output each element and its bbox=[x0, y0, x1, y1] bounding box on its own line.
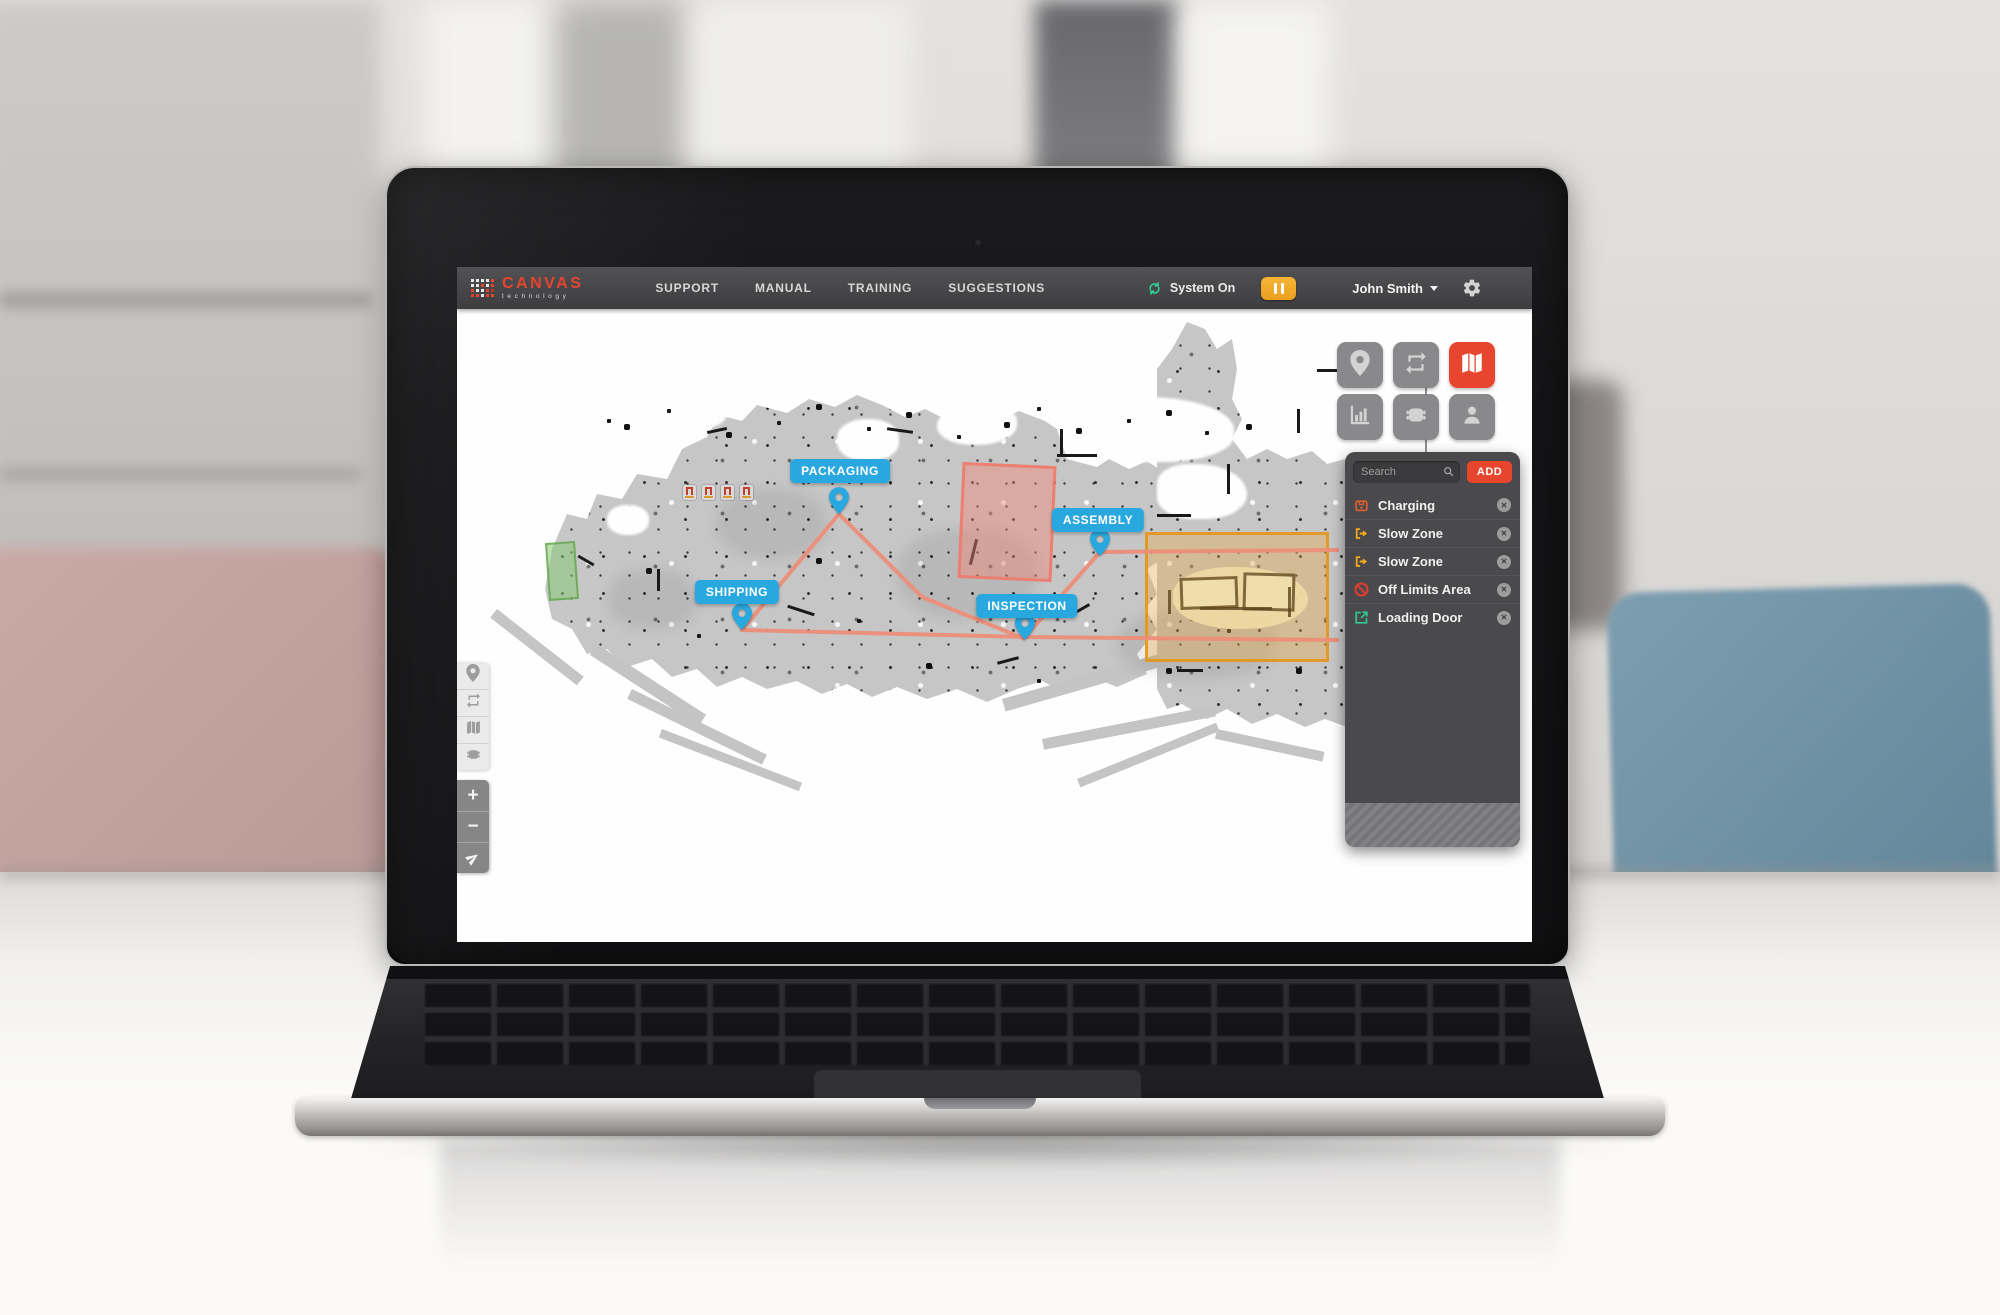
keyboard bbox=[425, 983, 1529, 1065]
pause-icon bbox=[1281, 283, 1284, 294]
search-icon bbox=[1442, 465, 1455, 478]
nav-menu: SUPPORT MANUAL TRAINING SUGGESTIONS bbox=[655, 281, 1045, 295]
list-item-label: Off Limits Area bbox=[1378, 582, 1489, 597]
top-navbar: CANVAS technology SUPPORT MANUAL TRAININ… bbox=[457, 267, 1532, 309]
slow-zone-area[interactable] bbox=[1145, 532, 1329, 662]
brand-name: CANVAS bbox=[502, 277, 583, 291]
floorplan-wall bbox=[1157, 514, 1191, 517]
panel-footer-grip[interactable] bbox=[1345, 803, 1520, 847]
off-limits-icon bbox=[1353, 581, 1370, 598]
add-button[interactable]: ADD bbox=[1467, 461, 1512, 483]
mini-routes-button[interactable] bbox=[457, 689, 489, 716]
list-item-label: Charging bbox=[1378, 498, 1489, 513]
floorplan-wall bbox=[657, 569, 660, 591]
zoom-out-button[interactable]: − bbox=[457, 811, 489, 842]
floorplan-wall bbox=[1060, 429, 1063, 457]
laptop-hinge bbox=[350, 966, 1605, 979]
map-pin-packaging[interactable] bbox=[829, 487, 849, 514]
toolbar-stats-button[interactable] bbox=[1337, 394, 1383, 440]
charging-glyph bbox=[743, 487, 750, 495]
charging-glyph bbox=[724, 487, 731, 495]
mini-locations-button[interactable] bbox=[457, 662, 489, 689]
charging-glyph-base bbox=[742, 496, 751, 498]
shelf-line bbox=[0, 292, 370, 308]
charging-station-marker[interactable] bbox=[721, 485, 734, 500]
charging-station-marker[interactable] bbox=[683, 485, 696, 500]
marker-label-assembly[interactable]: ASSEMBLY bbox=[1052, 508, 1144, 532]
floorplan-tendril bbox=[1042, 706, 1216, 750]
caret-down-icon bbox=[1430, 286, 1438, 291]
laptop-keyboard-deck bbox=[350, 966, 1605, 1102]
lid-opening-notch bbox=[924, 1098, 1036, 1109]
webcam-dot bbox=[973, 238, 982, 247]
floorplan-wall bbox=[1297, 409, 1300, 433]
floorplan-wall bbox=[1057, 454, 1097, 457]
laptop-desk-reflection bbox=[440, 1140, 1560, 1270]
robot-icon bbox=[1403, 402, 1429, 433]
floorplan-shade bbox=[717, 489, 827, 559]
remove-item-button[interactable]: ✕ bbox=[1497, 555, 1511, 569]
laptop-base-edge bbox=[295, 1098, 1665, 1136]
off-limits-zone[interactable] bbox=[958, 462, 1057, 582]
charging-station-marker[interactable] bbox=[740, 485, 753, 500]
navbar-right-cluster: System On John Smith bbox=[1146, 277, 1482, 300]
shelf-line bbox=[0, 468, 360, 480]
map-pin-shipping[interactable] bbox=[732, 603, 752, 630]
list-item-off-limits[interactable]: Off Limits Area ✕ bbox=[1345, 575, 1520, 603]
floorplan-white-room bbox=[667, 395, 727, 429]
toolbar-robots-button[interactable] bbox=[1393, 394, 1439, 440]
routes-loop-icon bbox=[465, 692, 482, 714]
list-item-slow-zone[interactable]: Slow Zone ✕ bbox=[1345, 519, 1520, 547]
loading-door-icon bbox=[1353, 609, 1370, 626]
panel-search-row: ADD bbox=[1345, 452, 1520, 487]
floorplan-white-room bbox=[937, 405, 1017, 445]
user-icon bbox=[1459, 402, 1485, 433]
charging-station-icon bbox=[1353, 497, 1370, 514]
navigate-arrow-icon bbox=[462, 847, 484, 869]
floorplan-tendril bbox=[627, 689, 767, 765]
list-item-charging[interactable]: Charging ✕ bbox=[1345, 491, 1520, 519]
charging-glyph bbox=[705, 487, 712, 495]
floorplan-shade bbox=[607, 569, 697, 629]
list-item-label: Loading Door bbox=[1378, 610, 1489, 625]
floorplan-speckles bbox=[607, 419, 611, 423]
canvas-app-window: CANVAS technology SUPPORT MANUAL TRAININ… bbox=[457, 267, 1532, 942]
remove-item-button[interactable]: ✕ bbox=[1497, 611, 1511, 625]
locate-me-button[interactable] bbox=[457, 842, 489, 873]
charging-glyph-base bbox=[704, 496, 713, 498]
floorplan-white-room bbox=[837, 419, 899, 461]
zone-floor-detail bbox=[1168, 590, 1171, 614]
gear-icon[interactable] bbox=[1462, 278, 1482, 298]
user-name: John Smith bbox=[1352, 281, 1423, 296]
warehouse-map[interactable]: PACKAGING ASSEMBLY SHIPPING INSPECTION bbox=[457, 309, 1532, 942]
loading-door-zone[interactable] bbox=[545, 541, 579, 601]
toolbar-users-button[interactable] bbox=[1449, 394, 1495, 440]
floorplan-tendril bbox=[1215, 729, 1325, 762]
map-features-panel: ADD Charging ✕ Slow Zone ✕ bbox=[1345, 452, 1520, 847]
zoom-in-button[interactable]: + bbox=[457, 780, 489, 811]
zone-floor-detail bbox=[1288, 587, 1291, 617]
mini-map-button[interactable] bbox=[457, 716, 489, 743]
toolbar-map-button[interactable] bbox=[1449, 342, 1495, 388]
floorplan-white-room bbox=[1059, 397, 1234, 462]
floorplan-wall bbox=[1227, 464, 1230, 494]
zone-floor-detail bbox=[1200, 607, 1272, 610]
zone-floor-detail bbox=[1179, 576, 1238, 610]
floorplan-wall bbox=[1177, 669, 1203, 672]
marker-label-inspection[interactable]: INSPECTION bbox=[976, 594, 1077, 618]
toolbar-locations-button[interactable] bbox=[1337, 342, 1383, 388]
pause-icon bbox=[1274, 283, 1277, 294]
toolbar-routes-button[interactable] bbox=[1393, 342, 1439, 388]
pink-chair-blur bbox=[0, 548, 395, 908]
floorplan-wall bbox=[1317, 369, 1337, 372]
zoom-controls: + − bbox=[457, 780, 489, 873]
nav-item-training[interactable]: TRAINING bbox=[848, 281, 912, 295]
stats-chart-icon bbox=[1347, 402, 1373, 433]
map-icon bbox=[1459, 350, 1485, 381]
brand-logo[interactable]: CANVAS technology bbox=[471, 277, 583, 300]
map-icon bbox=[465, 719, 482, 741]
list-item-label: Slow Zone bbox=[1378, 526, 1489, 541]
slow-zone-icon bbox=[1353, 525, 1370, 542]
nav-item-support[interactable]: SUPPORT bbox=[655, 281, 719, 295]
trackpad bbox=[814, 1070, 1140, 1100]
remove-item-button[interactable]: ✕ bbox=[1497, 527, 1511, 541]
mini-view-toolbar bbox=[457, 662, 489, 770]
system-status-label: System On bbox=[1170, 281, 1235, 295]
floorplan-white-room bbox=[607, 505, 649, 535]
robot-icon bbox=[465, 746, 482, 768]
map-features-list: Charging ✕ Slow Zone ✕ Slow Zone bbox=[1345, 491, 1520, 631]
scene: CANVAS technology SUPPORT MANUAL TRAININ… bbox=[0, 0, 2000, 1315]
marker-label-packaging[interactable]: PACKAGING bbox=[790, 459, 890, 483]
list-item-label: Slow Zone bbox=[1378, 554, 1489, 569]
charging-station-marker[interactable] bbox=[702, 485, 715, 500]
laptop-screen-bezel: CANVAS technology SUPPORT MANUAL TRAININ… bbox=[385, 166, 1570, 966]
list-item-slow-zone[interactable]: Slow Zone ✕ bbox=[1345, 547, 1520, 575]
mini-robot-button[interactable] bbox=[457, 743, 489, 770]
routes-loop-icon bbox=[1403, 350, 1429, 381]
remove-item-button[interactable]: ✕ bbox=[1497, 498, 1511, 512]
brand-text: CANVAS technology bbox=[502, 277, 583, 300]
pause-button[interactable] bbox=[1261, 277, 1296, 300]
search-box bbox=[1353, 461, 1460, 483]
remove-item-button[interactable]: ✕ bbox=[1497, 583, 1511, 597]
marker-label-shipping[interactable]: SHIPPING bbox=[695, 580, 779, 604]
nav-item-suggestions[interactable]: SUGGESTIONS bbox=[948, 281, 1045, 295]
nav-item-manual[interactable]: MANUAL bbox=[755, 281, 812, 295]
charging-glyph bbox=[686, 487, 693, 495]
charging-glyph-base bbox=[723, 496, 732, 498]
slow-zone-icon bbox=[1353, 553, 1370, 570]
location-pin-icon bbox=[1349, 350, 1371, 381]
sync-icon bbox=[1146, 280, 1163, 297]
brand-tagline: technology bbox=[502, 293, 583, 300]
brand-grid-icon bbox=[471, 279, 495, 298]
map-pin-assembly[interactable] bbox=[1090, 529, 1110, 556]
location-pin-icon bbox=[466, 664, 480, 687]
user-menu[interactable]: John Smith bbox=[1352, 281, 1438, 296]
list-item-loading-door[interactable]: Loading Door ✕ bbox=[1345, 603, 1520, 631]
charging-glyph-base bbox=[685, 496, 694, 498]
